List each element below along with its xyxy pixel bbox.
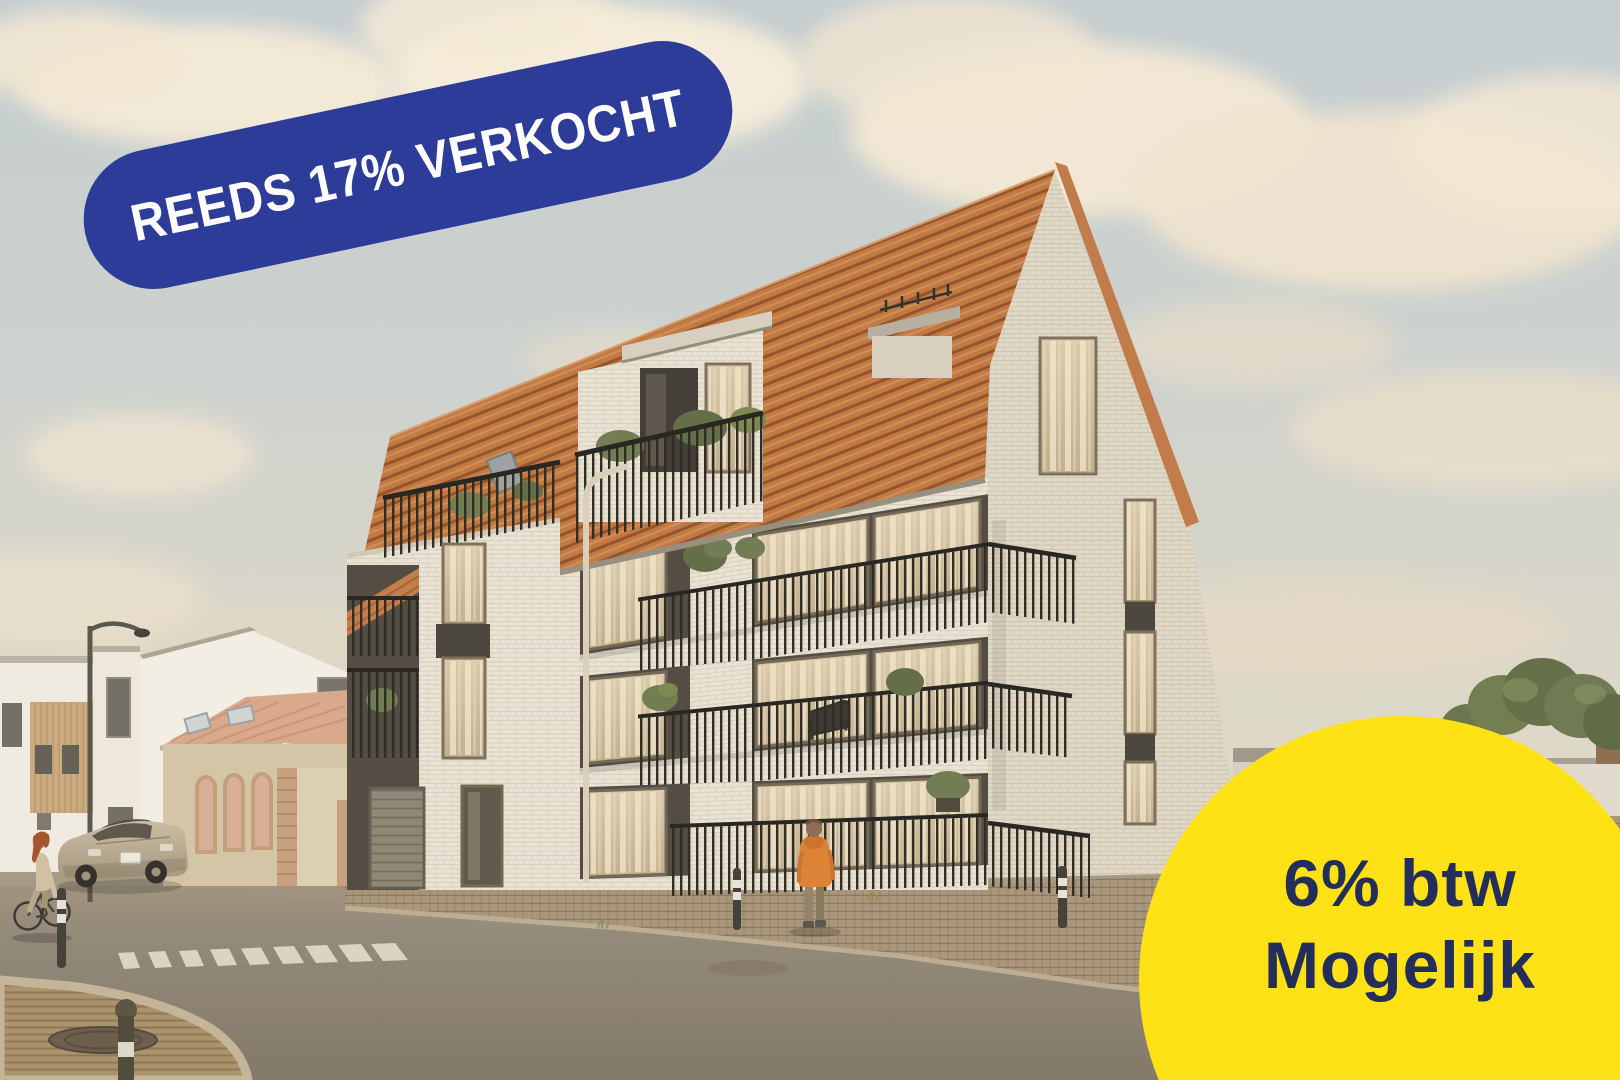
marketing-render: { "image": {"width": 1620, "height": 108… (0, 0, 1620, 1080)
vat-badge-line1: 6% btw (1283, 846, 1516, 920)
vat-badge-line2: Mogelijk (1264, 928, 1536, 1002)
scene-canvas: 6% btw Mogelijk REEDS 17% VERKOCHT (0, 0, 1620, 1080)
